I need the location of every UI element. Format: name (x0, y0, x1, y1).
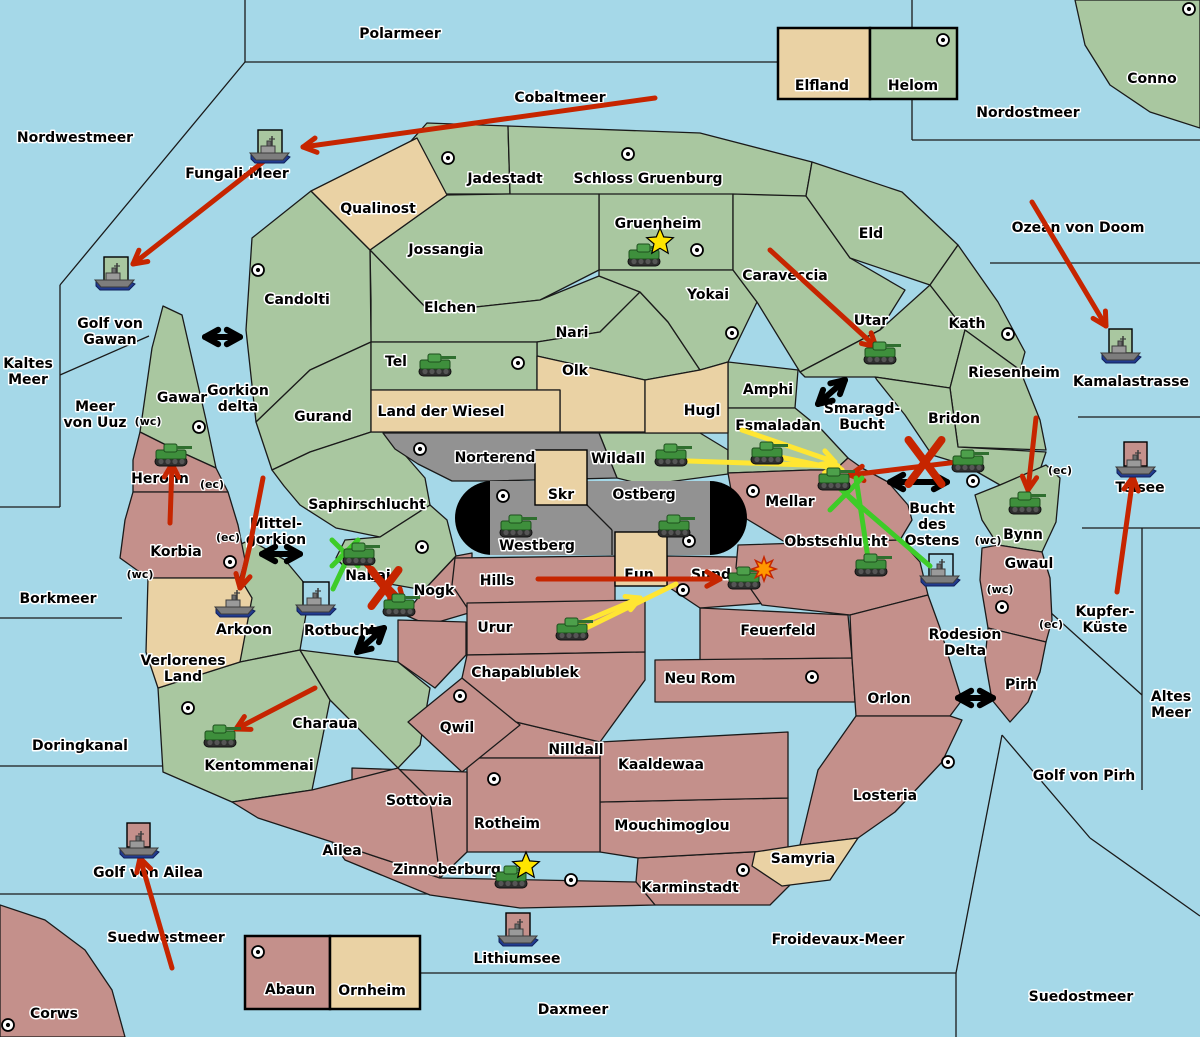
label-borkmeer: Borkmeer (20, 591, 97, 607)
tank-wheel-1 (429, 369, 434, 374)
supply-center-dot-15 (458, 694, 462, 698)
label-gawar: Gawar (157, 390, 207, 406)
tank-wheel-2 (400, 609, 405, 614)
label-neu-rom: Neu Rom (664, 671, 735, 687)
ship-deckhouse (931, 569, 945, 576)
label-golf-von-pirh: Golf von Pirh (1033, 768, 1135, 784)
label-candolti: Candolti (264, 292, 330, 308)
label-nordwestmeer: Nordwestmeer (17, 130, 133, 146)
tank-wheel-1 (668, 530, 673, 535)
label-riesenheim: Riesenheim (968, 365, 1060, 381)
label-abaun: Abaun (265, 982, 315, 998)
tank-barrel (1031, 494, 1046, 497)
region-rotheim[interactable] (467, 758, 600, 852)
label-samyria: Samyria (771, 851, 835, 867)
label-urur: Urur (477, 620, 512, 636)
tank-wheel-2 (1026, 507, 1031, 512)
label-bynn: Bynn (1003, 527, 1043, 543)
label-rotbucht: Rotbucht (304, 623, 376, 639)
label-land-der-wiesel: Land der Wiesel (378, 404, 505, 420)
label-mellar: Mellar (765, 494, 814, 510)
tank-turret (392, 594, 405, 602)
tank-wheel-1 (1019, 507, 1024, 512)
tank-wheel-0 (658, 459, 663, 464)
label-conno: Conno (1127, 71, 1177, 87)
tank-wheel-1 (353, 558, 358, 563)
swap-arrow-2-a-head1 (830, 380, 845, 383)
label-qualinost: Qualinost (340, 201, 416, 217)
tank-wheel-3 (652, 259, 657, 264)
label-hills: Hills (480, 573, 514, 589)
ship-deckhouse (130, 841, 144, 848)
tank-wheel-0 (386, 609, 391, 614)
label-kamalastrasse: Kamalastrasse (1073, 374, 1189, 390)
label-gurand: Gurand (294, 409, 352, 425)
label-corws-label: Corws (30, 1006, 78, 1022)
swap-arrow-2-b-head1 (818, 401, 833, 404)
support-arrow-yellow-3-head1 (625, 596, 640, 598)
attack-arrow-red-1-head1 (133, 262, 148, 264)
label-feuerfeld: Feuerfeld (740, 623, 815, 639)
ship-funnel (515, 924, 519, 929)
tank-wheel-0 (754, 457, 759, 462)
label-schloss-gruenburg: Schloss Gruenburg (573, 171, 722, 187)
label-sottovia: Sottovia (386, 793, 452, 809)
tank-turret (164, 444, 177, 452)
tank-barrel (441, 356, 456, 359)
label-kentommenai: Kentommenai (204, 758, 313, 774)
tank-wheel-3 (775, 457, 780, 462)
supply-center-dot-1 (626, 152, 630, 156)
tank-turret (873, 342, 886, 350)
supply-center-dot-16 (492, 777, 496, 781)
supply-center-dot-19 (810, 675, 814, 679)
label-norterend: Norterend (455, 450, 536, 466)
tank-turret (737, 567, 750, 575)
tank-wheel-2 (881, 357, 886, 362)
ship-funnel (112, 268, 116, 273)
label-nilldall: Nilldall (548, 742, 603, 758)
swap-arrow-4-b-head1 (357, 649, 372, 652)
supply-center-dot-27 (6, 1023, 10, 1027)
tank-turret (213, 725, 226, 733)
ship-hull (250, 153, 289, 160)
ship-deckhouse (1112, 346, 1126, 353)
tank-wheel-2 (172, 459, 177, 464)
supply-center-dot-4 (256, 268, 260, 272)
label-orlon: Orlon (867, 691, 910, 707)
tank-wheel-0 (158, 459, 163, 464)
combat-burst-0 (752, 557, 776, 581)
tank-wheel-3 (679, 459, 684, 464)
label-nari: Nari (556, 325, 589, 341)
tank-wheel-1 (865, 569, 870, 574)
tank-wheel-1 (638, 259, 643, 264)
label-cobaltmeer: Cobaltmeer (514, 90, 605, 106)
tank-barrel (226, 727, 241, 730)
tank-wheel-0 (346, 558, 351, 563)
tank-wheel-0 (207, 740, 212, 745)
attack-arrow-red-6-head1 (1105, 311, 1106, 326)
tank-turret (504, 866, 517, 874)
tank-wheel-3 (752, 582, 757, 587)
supply-center-dot-3 (730, 331, 734, 335)
ship-hull (1101, 353, 1140, 360)
tank-wheel-0 (422, 369, 427, 374)
supply-center-dot-14 (186, 706, 190, 710)
label-gwaul-wc: (wc) (987, 583, 1014, 596)
label-mouchimoglou: Mouchimoglou (614, 818, 729, 834)
tank-wheel-1 (393, 609, 398, 614)
tank-wheel-3 (524, 530, 529, 535)
ship-funnel (232, 595, 236, 600)
label-elchen: Elchen (424, 300, 476, 316)
label-eld: Eld (859, 226, 883, 242)
ship-hull (296, 605, 335, 612)
tank-turret (864, 554, 877, 562)
ship-hull (498, 936, 537, 943)
tank-wheel-2 (436, 369, 441, 374)
label-daxmeer: Daxmeer (538, 1002, 609, 1018)
label-arkoon: Arkoon (216, 622, 272, 638)
label-bynn-ec: (ec) (1048, 464, 1072, 477)
label-ostberg: Ostberg (612, 487, 675, 503)
label-korbia-ec: (ec) (216, 531, 240, 544)
tank-wheel-2 (872, 569, 877, 574)
supply-center-dot-11 (751, 489, 755, 493)
tank-wheel-1 (761, 457, 766, 462)
tank-barrel (886, 344, 901, 347)
ship-deckhouse (261, 146, 275, 153)
attack-arrow-red-11-head1 (137, 858, 140, 873)
tank-wheel-1 (874, 357, 879, 362)
label-saphirschlucht: Saphirschlucht (308, 497, 426, 513)
supply-center-dot-24 (941, 38, 945, 42)
tank-wheel-2 (512, 881, 517, 886)
tank-wheel-0 (858, 569, 863, 574)
label-kupfer-kueste: Kupfer-Küste (1076, 604, 1135, 636)
tank-wheel-0 (631, 259, 636, 264)
tank-wheel-1 (214, 740, 219, 745)
tank-wheel-1 (665, 459, 670, 464)
label-obstschlucht: Obstschlucht (784, 534, 888, 550)
tank-wheel-2 (517, 530, 522, 535)
tank-barrel (680, 517, 695, 520)
label-olk: Olk (562, 363, 589, 379)
tank-turret (509, 515, 522, 523)
label-chapablublek: Chapablublek (471, 665, 579, 681)
tank-turret (961, 450, 974, 458)
tank-wheel-1 (505, 881, 510, 886)
ship-hull (95, 280, 134, 287)
label-hugl: Hugl (684, 403, 721, 419)
tank-wheel-1 (738, 582, 743, 587)
supply-center-dot-25 (1187, 7, 1191, 11)
tank-barrel (405, 596, 420, 599)
ship-funnel (267, 141, 271, 146)
supply-center-dot-22 (971, 479, 975, 483)
tank-turret (428, 354, 441, 362)
tank-wheel-3 (682, 530, 687, 535)
tank-wheel-3 (407, 609, 412, 614)
label-westberg: Westberg (499, 538, 575, 554)
label-ozean-von-doom: Ozean von Doom (1012, 220, 1145, 236)
tank-wheel-3 (367, 558, 372, 563)
tank-wheel-0 (731, 582, 736, 587)
label-rotheim: Rotheim (474, 816, 540, 832)
label-gwaul: Gwaul (1005, 556, 1054, 572)
supply-center-dot-7 (418, 447, 422, 451)
supply-center-dot-2 (695, 248, 699, 252)
tank-wheel-3 (443, 369, 448, 374)
label-wildall: Wildall (591, 451, 645, 467)
label-caraveccia: Caraveccia (742, 268, 828, 284)
tank-wheel-0 (498, 881, 503, 886)
tank-wheel-0 (821, 483, 826, 488)
label-suedostmeer: Suedostmeer (1029, 989, 1134, 1005)
supply-center-dot-21 (1000, 605, 1004, 609)
supply-center-dot-6 (197, 425, 201, 429)
map-canvas: PolarmeerNordwestmeerCobaltmeerFungali-M… (0, 0, 1200, 1037)
tank-wheel-0 (955, 465, 960, 470)
tank-wheel-2 (360, 558, 365, 563)
supply-center-dot-12 (228, 560, 232, 564)
ship-deckhouse (1127, 460, 1141, 467)
label-nordostmeer: Nordostmeer (976, 105, 1079, 121)
ship-deckhouse (509, 929, 523, 936)
label-altes-meer: AltesMeer (1151, 689, 1191, 721)
label-polarmeer: Polarmeer (359, 26, 441, 42)
supply-center-dot-26 (256, 950, 260, 954)
ship-funnel (1133, 455, 1137, 460)
tank-wheel-2 (645, 259, 650, 264)
tank-turret (760, 442, 773, 450)
label-kaaldewaa: Kaaldewaa (618, 757, 704, 773)
tank-turret (664, 444, 677, 452)
ship-funnel (1118, 341, 1122, 346)
attack-arrow-red-2 (170, 464, 172, 523)
tank-turret (1018, 492, 1031, 500)
tank-wheel-2 (573, 633, 578, 638)
label-yokai: Yokai (686, 287, 729, 303)
swap-arrow-4-a-head1 (369, 628, 384, 631)
label-losteria: Losteria (853, 788, 917, 804)
label-korbia: Korbia (150, 544, 201, 560)
tank-wheel-2 (672, 459, 677, 464)
tank-turret (637, 244, 650, 252)
tank-wheel-1 (566, 633, 571, 638)
label-kath: Kath (949, 316, 986, 332)
tank-barrel (877, 556, 892, 559)
game-map: PolarmeerNordwestmeerCobaltmeerFungali-M… (0, 0, 1200, 1037)
tank-wheel-3 (1033, 507, 1038, 512)
supply-center-dot-0 (446, 156, 450, 160)
tank-wheel-0 (867, 357, 872, 362)
label-utar: Utar (854, 313, 889, 329)
tank-wheel-3 (976, 465, 981, 470)
ship-hull (215, 607, 254, 614)
label-tel: Tel (385, 354, 407, 370)
tank-wheel-1 (165, 459, 170, 464)
tank-turret (565, 618, 578, 626)
tank-wheel-1 (828, 483, 833, 488)
tank-turret (352, 543, 365, 551)
tank-wheel-3 (519, 881, 524, 886)
ship-funnel (313, 593, 317, 598)
tank-barrel (677, 446, 692, 449)
ship-funnel (136, 836, 140, 841)
tank-barrel (773, 444, 788, 447)
label-froidevaux-meer: Froidevaux-Meer (772, 932, 905, 948)
tank-wheel-1 (962, 465, 967, 470)
tank-wheel-2 (969, 465, 974, 470)
tank-barrel (578, 620, 593, 623)
tank-wheel-3 (228, 740, 233, 745)
tank-barrel (840, 470, 855, 473)
label-heronn-wc: (wc) (135, 415, 162, 428)
tank-wheel-0 (503, 530, 508, 535)
tank-wheel-3 (879, 569, 884, 574)
supply-center-dot-13 (420, 545, 424, 549)
label-bridon: Bridon (928, 411, 980, 427)
label-korbia-wc: (wc) (127, 568, 154, 581)
supply-center-dot-20 (946, 760, 950, 764)
tank-wheel-2 (835, 483, 840, 488)
tank-wheel-3 (580, 633, 585, 638)
label-elfland: Elfland (795, 78, 849, 94)
label-golf-von-gawan: Golf vonGawan (77, 316, 143, 348)
label-lithiumsee: Lithiumsee (473, 951, 560, 967)
label-kaltes-meer: KaltesMeer (3, 356, 53, 388)
tank-wheel-0 (1012, 507, 1017, 512)
label-helom: Helom (888, 78, 938, 94)
tank-wheel-2 (221, 740, 226, 745)
label-jadestadt: Jadestadt (466, 171, 543, 187)
region-gruenheim[interactable] (599, 194, 733, 270)
tank-wheel-2 (768, 457, 773, 462)
tank-wheel-0 (661, 530, 666, 535)
label-qwil: Qwil (440, 720, 474, 736)
tank-barrel (365, 545, 380, 548)
label-heronn-ec: (ec) (200, 478, 224, 491)
label-gruenheim: Gruenheim (615, 216, 702, 232)
tank-barrel (522, 517, 537, 520)
supply-center-dot-10 (681, 588, 685, 592)
label-doringkanal: Doringkanal (32, 738, 128, 754)
tank-turret (667, 515, 680, 523)
tank-wheel-2 (745, 582, 750, 587)
label-gwaul-ec: (ec) (1039, 618, 1063, 631)
tank-wheel-3 (179, 459, 184, 464)
supply-center-dot-9 (687, 539, 691, 543)
label-pirh: Pirh (1005, 677, 1037, 693)
label-skr: Skr (548, 487, 574, 503)
label-ailea: Ailea (322, 843, 361, 859)
label-ornheim: Ornheim (338, 983, 406, 999)
tank-barrel (974, 452, 989, 455)
label-amphi: Amphi (743, 382, 793, 398)
supply-center-dot-17 (569, 878, 573, 882)
tank-wheel-0 (559, 633, 564, 638)
ship-deckhouse (106, 273, 120, 280)
label-zinnoberburg: Zinnoberburg (393, 862, 501, 878)
tank-wheel-3 (888, 357, 893, 362)
label-jossangia: Jossangia (407, 242, 483, 258)
ship-hull (119, 848, 158, 855)
label-bynn-wc: (wc) (975, 534, 1002, 547)
supply-center-dot-5 (516, 361, 520, 365)
label-karminstadt: Karminstadt (641, 880, 739, 896)
ship-deckhouse (307, 598, 321, 605)
supply-center-dot-18 (741, 868, 745, 872)
tank-wheel-2 (675, 530, 680, 535)
tank-wheel-1 (510, 530, 515, 535)
ship-funnel (937, 564, 941, 569)
ship-hull (920, 576, 959, 583)
ship-deckhouse (226, 600, 240, 607)
label-charaua: Charaua (292, 716, 357, 732)
supply-center-dot-23 (1006, 332, 1010, 336)
tank-barrel (177, 446, 192, 449)
tank-turret (827, 468, 840, 476)
tank-wheel-3 (842, 483, 847, 488)
supply-center-dot-8 (501, 494, 505, 498)
ship-hull (1116, 467, 1155, 474)
